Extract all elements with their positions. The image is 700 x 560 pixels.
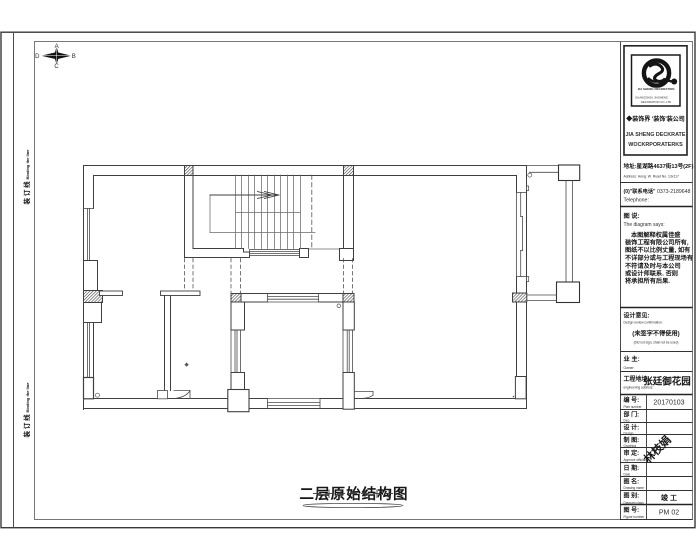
svg-text:D: D [35, 54, 40, 60]
svg-text:将承担所有后果.: 将承担所有后果. [625, 277, 670, 285]
svg-text:设 计:: 设 计: [624, 424, 640, 432]
svg-text:审 定:: 审 定: [624, 449, 640, 457]
svg-text:不详部分或与工程现场有: 不详部分或与工程现场有 [625, 254, 693, 262]
svg-text:WOCKRPORATERKS: WOCKRPORATERKS [628, 142, 683, 148]
svg-text:不符请及时与本公司: 不符请及时与本公司 [625, 262, 681, 270]
svg-text:图 说:: 图 说: [624, 212, 640, 220]
svg-text:地址:星湖路4637街13号(2F): 地址:星湖路4637街13号(2F) [624, 162, 694, 170]
svg-text:GUANGZHOU JIASHENG: GUANGZHOU JIASHENG [635, 96, 668, 100]
svg-text:Telephone:: Telephone: [624, 198, 649, 204]
svg-text:设计意见:: 设计意见: [624, 312, 650, 320]
svg-text:Graphics: Graphics [624, 444, 637, 448]
svg-text:本图解释权属佳盛: 本图解释权属佳盛 [631, 231, 681, 239]
svg-text:图 号:: 图 号: [624, 506, 640, 514]
svg-text:图 名:: 图 名: [624, 478, 640, 486]
svg-text:部 门:: 部 门: [624, 411, 640, 419]
svg-text:JIA SHENG DECKRATE: JIA SHENG DECKRATE [626, 132, 686, 138]
svg-text:编 号:: 编 号: [624, 396, 640, 404]
svg-text:图 别:: 图 别: [624, 492, 640, 500]
svg-text:PM 02: PM 02 [659, 510, 679, 517]
svg-text:Dep.: Dep. [624, 419, 631, 423]
svg-text:B: B [72, 54, 76, 60]
svg-text:竣 工: 竣 工 [661, 493, 677, 502]
svg-text:或设计师联系. 否则: 或设计师联系. 否则 [625, 269, 678, 277]
svg-text:Design review confirmation:: Design review confirmation: [624, 321, 663, 325]
svg-text:Date: Date [624, 473, 631, 477]
svg-text:Figure number: Figure number [624, 515, 646, 519]
svg-text:20170103: 20170103 [653, 400, 684, 407]
svg-text:二层原始结构图: 二层原始结构图 [299, 485, 408, 503]
svg-text:(0)"联系电话" 0373-2189648: (0)"联系电话" 0373-2189648 [624, 187, 691, 195]
svg-text:日 期:: 日 期: [624, 464, 640, 472]
svg-text:Owner:: Owner: [624, 366, 635, 370]
svg-text:◆装饰界 '装饰'装公司: ◆装饰界 '装饰'装公司 [625, 115, 685, 123]
svg-text:(未签字不得使用): (未签字不得使用) [632, 330, 679, 338]
svg-text:The diagram says:: The diagram says: [624, 222, 665, 228]
svg-text:装饰工程有限公司所有,: 装饰工程有限公司所有, [624, 239, 689, 247]
svg-text:业 主:: 业 主: [624, 355, 640, 363]
svg-text:A: A [55, 44, 59, 50]
svg-text:Design: Design [624, 432, 634, 436]
svg-text:Plan number: Plan number [624, 405, 643, 409]
svg-text:图纸不以比例丈量, 如有: 图纸不以比例丈量, 如有 [625, 246, 690, 254]
svg-text:(Did not sign, shall not be us: (Did not sign, shall not be used) [634, 341, 679, 345]
svg-text:张廷御花园: 张廷御花园 [643, 376, 691, 388]
svg-text:DECORATION CO.,LTD: DECORATION CO.,LTD [641, 100, 671, 104]
svg-text:Diagram class: Diagram class [624, 501, 645, 505]
svg-text:制 图:: 制 图: [624, 436, 640, 444]
svg-text:JIA SHENG DECORATION: JIA SHENG DECORATION [638, 87, 675, 91]
svg-text:Drawing name: Drawing name [624, 486, 645, 490]
svg-text:C: C [54, 64, 59, 70]
svg-text:Address: Hong. W. Road No. 13x: Address: Hong. W. Road No. 13x117 [624, 175, 679, 179]
